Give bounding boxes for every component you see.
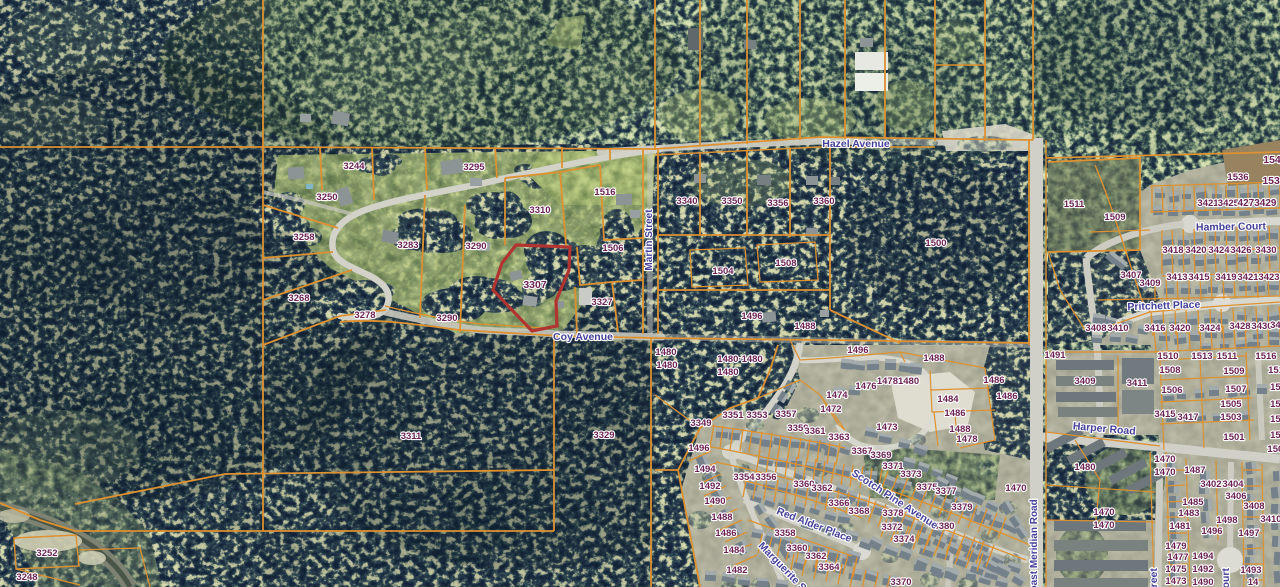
svg-text:1480: 1480 <box>655 347 676 358</box>
svg-text:3278: 3278 <box>354 310 375 321</box>
svg-text:1506: 1506 <box>1161 385 1182 396</box>
svg-text:3411: 3411 <box>1127 378 1148 389</box>
svg-text:1503: 1503 <box>1220 412 1241 423</box>
svg-text:1500: 1500 <box>925 238 946 249</box>
svg-text:Hamber Court: Hamber Court <box>1196 220 1267 233</box>
svg-text:3373: 3373 <box>900 469 921 480</box>
svg-text:1497: 1497 <box>1238 528 1259 539</box>
svg-text:3349: 3349 <box>690 418 711 429</box>
svg-text:151: 151 <box>1268 365 1280 376</box>
svg-text:1496: 1496 <box>847 345 868 356</box>
svg-text:Hazel Avenue: Hazel Avenue <box>822 138 890 150</box>
svg-text:14: 14 <box>1248 577 1259 587</box>
svg-text:343: 343 <box>1270 320 1280 331</box>
svg-text:1484: 1484 <box>723 545 745 556</box>
svg-text:Coy Avenue: Coy Avenue <box>553 331 613 343</box>
svg-text:3244: 3244 <box>343 161 365 172</box>
svg-text:3409: 3409 <box>1139 278 1160 289</box>
svg-text:1496: 1496 <box>741 311 762 322</box>
svg-text:1508: 1508 <box>1159 365 1180 376</box>
svg-text:1490: 1490 <box>704 496 725 507</box>
svg-text:1494: 1494 <box>1192 551 1214 562</box>
svg-text:1498: 1498 <box>1216 515 1237 526</box>
svg-text:Court: Court <box>1220 568 1232 587</box>
svg-text:1510: 1510 <box>1157 351 1178 362</box>
svg-text:3366: 3366 <box>828 498 849 509</box>
svg-text:1486: 1486 <box>983 375 1004 386</box>
svg-text:Martin Street: Martin Street <box>644 209 655 271</box>
svg-text:1508: 1508 <box>775 258 796 269</box>
svg-text:3407: 3407 <box>1120 270 1141 281</box>
svg-text:3362: 3362 <box>805 551 826 562</box>
svg-text:3415: 3415 <box>1154 409 1176 420</box>
svg-text:Coast Meridian Road: Coast Meridian Road <box>1029 499 1040 587</box>
svg-text:1509: 1509 <box>1223 366 1244 377</box>
svg-text:1470: 1470 <box>1005 483 1026 494</box>
svg-text:1490: 1490 <box>1192 577 1213 587</box>
svg-text:1473: 1473 <box>876 422 897 433</box>
svg-text:154: 154 <box>1263 154 1280 166</box>
svg-text:1481: 1481 <box>1169 521 1191 532</box>
svg-text:3426: 3426 <box>1230 245 1251 256</box>
svg-text:1492: 1492 <box>1192 564 1213 575</box>
svg-text:3374: 3374 <box>893 534 915 545</box>
svg-text:1483: 1483 <box>1178 508 1199 519</box>
svg-text:3377: 3377 <box>935 486 956 497</box>
svg-text:1473: 1473 <box>1165 576 1186 587</box>
svg-text:1502: 1502 <box>1267 444 1280 455</box>
svg-text:Pritchett Place: Pritchett Place <box>1127 299 1200 314</box>
svg-text:3421: 3421 <box>1197 198 1219 209</box>
svg-text:3290: 3290 <box>436 313 457 324</box>
svg-text:1506: 1506 <box>602 243 623 254</box>
svg-text:3354: 3354 <box>733 472 755 483</box>
svg-text:1470: 1470 <box>1093 520 1114 531</box>
svg-text:3290: 3290 <box>465 241 486 252</box>
svg-text:3360: 3360 <box>813 196 834 207</box>
svg-text:1488: 1488 <box>923 353 944 364</box>
svg-text:4273429: 4273429 <box>1238 198 1277 209</box>
svg-text:3415: 3415 <box>1188 272 1210 283</box>
svg-text:3356: 3356 <box>767 198 788 209</box>
svg-text:3368: 3368 <box>848 506 869 517</box>
svg-text:3409: 3409 <box>1074 376 1095 387</box>
svg-text:3408: 3408 <box>1085 323 1106 334</box>
svg-text:3340: 3340 <box>676 196 697 207</box>
svg-text:150: 150 <box>1270 414 1280 425</box>
svg-text:3258: 3258 <box>293 232 314 243</box>
svg-text:3283: 3283 <box>397 240 418 251</box>
svg-text:151: 151 <box>1270 382 1280 393</box>
svg-text:3421: 3421 <box>1237 272 1259 283</box>
svg-text:1480: 1480 <box>1074 462 1095 473</box>
svg-text:3423: 3423 <box>1258 272 1279 283</box>
svg-text:1509: 1509 <box>1104 212 1125 223</box>
svg-text:3363: 3363 <box>828 432 849 443</box>
svg-text:3329: 3329 <box>593 430 614 441</box>
svg-text:Street: Street <box>1148 568 1160 587</box>
svg-text:1501: 1501 <box>1223 432 1245 443</box>
svg-text:1486: 1486 <box>944 408 965 419</box>
svg-text:3327: 3327 <box>591 297 612 308</box>
svg-text:1536: 1536 <box>1227 172 1248 183</box>
svg-text:1480: 1480 <box>656 360 677 371</box>
svg-text:1480·1480: 1480·1480 <box>717 354 762 365</box>
svg-text:1478: 1478 <box>956 434 977 445</box>
svg-text:3295: 3295 <box>463 162 485 173</box>
svg-text:3428: 3428 <box>1229 321 1250 332</box>
svg-text:1496: 1496 <box>1201 526 1222 537</box>
svg-text:14781480: 14781480 <box>877 376 919 387</box>
svg-text:3369: 3369 <box>870 450 891 461</box>
svg-text:3364: 3364 <box>818 562 840 573</box>
svg-text:151: 151 <box>1270 399 1280 410</box>
svg-text:3416: 3416 <box>1144 323 1165 334</box>
svg-text:1516: 1516 <box>594 187 615 198</box>
svg-text:1484: 1484 <box>937 394 959 405</box>
svg-text:3311: 3311 <box>401 431 422 442</box>
svg-text:1474: 1474 <box>826 390 848 401</box>
svg-text:3420: 3420 <box>1185 245 1206 256</box>
svg-text:1485: 1485 <box>1182 497 1204 508</box>
svg-text:1479: 1479 <box>1165 541 1186 552</box>
svg-text:1496: 1496 <box>688 443 709 454</box>
svg-text:1476: 1476 <box>855 381 876 392</box>
svg-text:3408: 3408 <box>1243 501 1264 512</box>
svg-text:1505: 1505 <box>1220 399 1242 410</box>
svg-text:3420: 3420 <box>1169 323 1190 334</box>
svg-text:3404: 3404 <box>1222 479 1244 490</box>
svg-text:3361: 3361 <box>804 426 826 437</box>
svg-text:3430: 3430 <box>1255 245 1276 256</box>
svg-text:3350: 3350 <box>721 196 742 207</box>
svg-text:3424: 3424 <box>1208 245 1230 256</box>
svg-text:1511: 1511 <box>1064 199 1085 210</box>
svg-text:1477: 1477 <box>1167 552 1188 563</box>
svg-text:3402: 3402 <box>1200 479 1221 490</box>
svg-text:3310: 3310 <box>529 205 550 216</box>
svg-text:3367: 3367 <box>851 446 872 457</box>
svg-text:1516: 1516 <box>1255 351 1276 362</box>
svg-text:1487: 1487 <box>1184 465 1205 476</box>
svg-text:3418: 3418 <box>1162 245 1183 256</box>
svg-text:1492: 1492 <box>699 481 720 492</box>
svg-text:1475: 1475 <box>1165 564 1187 575</box>
svg-text:1513: 1513 <box>1191 351 1212 362</box>
svg-text:3379: 3379 <box>951 502 972 513</box>
svg-text:1488: 1488 <box>794 321 815 332</box>
svg-text:1470: 1470 <box>1093 507 1114 518</box>
svg-text:1470: 1470 <box>1154 467 1175 478</box>
svg-text:3372: 3372 <box>881 522 902 533</box>
svg-text:1511: 1511 <box>1217 351 1238 362</box>
svg-text:3410: 3410 <box>1260 514 1280 525</box>
svg-text:3357: 3357 <box>775 409 796 420</box>
svg-text:3419: 3419 <box>1215 272 1236 283</box>
svg-text:3351: 3351 <box>722 410 744 421</box>
svg-text:1486: 1486 <box>715 528 736 539</box>
svg-text:3410: 3410 <box>1107 323 1128 334</box>
svg-text:1531: 1531 <box>1262 175 1280 187</box>
svg-text:3353: 3353 <box>746 410 767 421</box>
svg-text:1493: 1493 <box>1240 565 1261 576</box>
svg-text:1507: 1507 <box>1225 384 1246 395</box>
svg-text:1482: 1482 <box>726 565 747 576</box>
svg-text:1480: 1480 <box>717 367 738 378</box>
svg-text:3417: 3417 <box>1177 412 1198 423</box>
svg-text:3248: 3248 <box>16 572 37 583</box>
svg-text:1486: 1486 <box>996 391 1017 402</box>
svg-text:3268: 3268 <box>288 293 309 304</box>
svg-text:1472: 1472 <box>820 404 841 415</box>
svg-text:3250: 3250 <box>316 192 337 203</box>
svg-text:3424: 3424 <box>1199 323 1221 334</box>
svg-text:3252: 3252 <box>36 548 57 559</box>
svg-text:3358: 3358 <box>774 528 795 539</box>
svg-text:3362: 3362 <box>811 483 832 494</box>
svg-text:3360: 3360 <box>786 543 807 554</box>
svg-text:150: 150 <box>1270 430 1280 441</box>
svg-text:3413: 3413 <box>1166 272 1187 283</box>
svg-text:1504: 1504 <box>712 266 734 277</box>
svg-text:1491: 1491 <box>1044 350 1066 361</box>
svg-text:3370: 3370 <box>890 577 911 587</box>
svg-text:3356: 3356 <box>755 472 776 483</box>
svg-text:1494: 1494 <box>694 464 716 475</box>
svg-text:1488: 1488 <box>711 512 732 523</box>
svg-text:1470: 1470 <box>1154 454 1175 465</box>
svg-text:3307: 3307 <box>523 279 547 291</box>
